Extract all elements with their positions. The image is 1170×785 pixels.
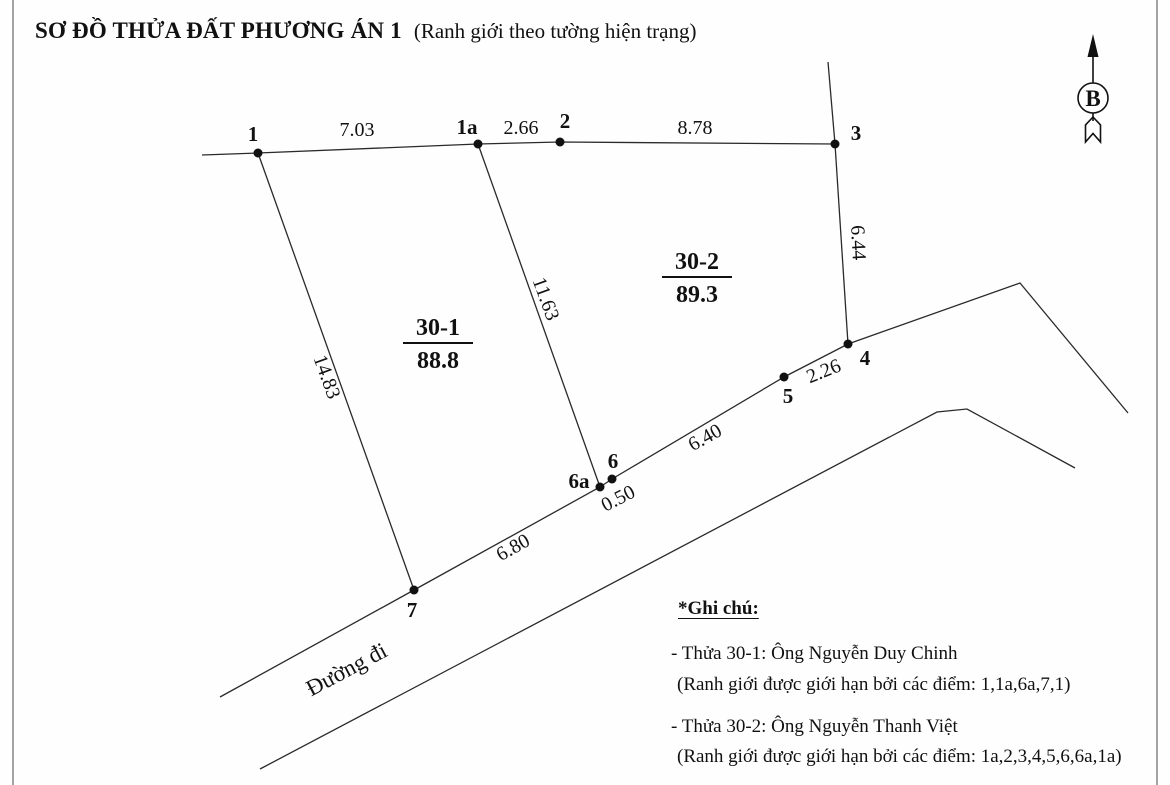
point-label-5: 5 [783,384,794,408]
point-label-7: 7 [407,598,418,622]
note-parcel-30-2-boundary: (Ranh giới được giới hạn bởi các điểm: 1… [677,746,1122,769]
road-lower-edge [260,409,1075,769]
parcel-30-2-area: 89.3 [676,282,718,308]
plot-diagram: B 1 1a 2 3 4 5 6 6 [0,0,1170,785]
length-1-1a: 7.03 [340,119,375,141]
note-parcel-30-2-owner: - Thửa 30-2: Ông Nguyễn Thanh Việt [671,716,958,739]
point-label-1a: 1a [457,115,479,139]
length-1-7: 14.83 [309,352,345,402]
length-1a-2: 2.66 [504,117,539,139]
point-4 [844,340,853,349]
parcel-30-2-id: 30-2 [675,249,719,275]
point-7 [410,586,419,595]
road-label: Đường đi [302,638,391,701]
point-6a [596,483,605,492]
length-2-3: 8.78 [678,117,713,139]
length-6-5: 6.40 [684,420,725,456]
divider-line-1a-6a [478,144,600,487]
north-label: B [1085,86,1100,111]
parcel-30-1-id: 30-1 [416,315,460,341]
point-3 [831,140,840,149]
point-label-4: 4 [860,346,871,370]
note-parcel-30-1-owner: - Thửa 30-1: Ông Nguyễn Duy Chinh [671,643,957,666]
north-arrow-head [1088,34,1099,57]
point-label-3: 3 [851,121,862,145]
east-boundary-line-3-4 [835,144,848,344]
point-1 [254,149,263,158]
notes-heading: *Ghi chú: [678,598,759,621]
point-label-6a: 6a [569,469,591,493]
point-label-2: 2 [560,109,571,133]
north-boundary-line [202,142,835,155]
point-label-6: 6 [608,449,619,473]
road-upper-edge [220,283,1128,697]
length-5-4: 2.26 [803,355,844,389]
point-6 [608,475,617,484]
point-5 [780,373,789,382]
note-parcel-30-1-boundary: (Ranh giới được giới hạn bởi các điểm: 1… [677,674,1070,697]
cadastral-sketch-page: SƠ ĐỒ THỬA ĐẤT PHƯƠNG ÁN 1 (Ranh giới th… [0,0,1170,785]
parcel-30-1-area: 88.8 [417,348,459,374]
point-label-1: 1 [248,122,259,146]
length-7-6a: 6.80 [492,530,533,566]
point-2 [556,138,565,147]
spur-line-above-3 [828,62,835,144]
point-1a [474,140,483,149]
survey-points [254,138,853,595]
length-3-4: 6.44 [846,225,870,261]
